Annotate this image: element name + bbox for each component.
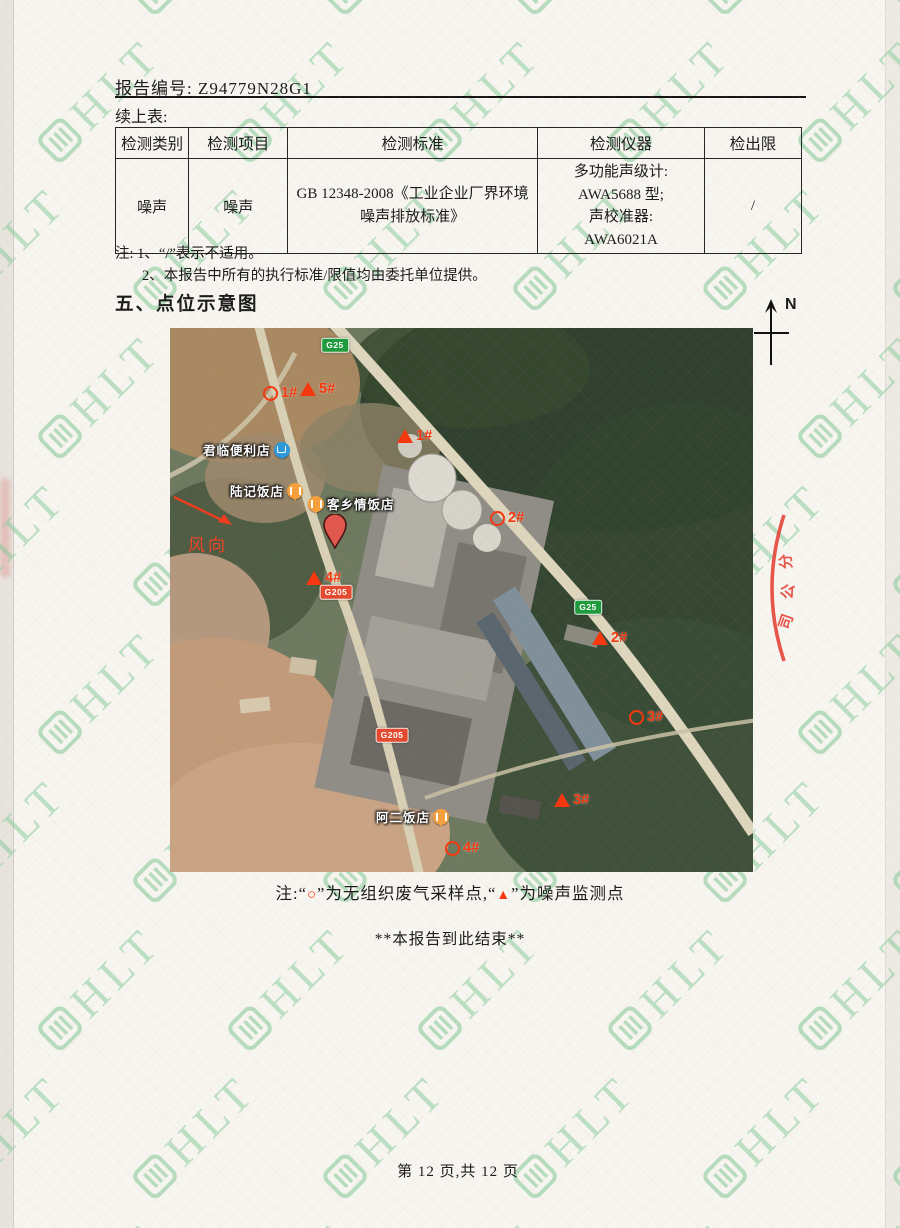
restaurant-pin-icon — [308, 496, 324, 512]
triangle-marker-icon — [554, 793, 570, 807]
legend-text: ”为无组织废气采样点,“ — [317, 884, 496, 903]
north-compass: N — [745, 295, 805, 371]
continued-table-label: 续上表: — [115, 103, 167, 127]
note-line: 2、本报告中所有的执行标准/限值均由委托单位提供。 — [115, 265, 487, 287]
noise-monitoring-point: 2# — [592, 630, 627, 646]
circle-marker-icon — [490, 511, 505, 526]
circle-marker-icon — [629, 710, 644, 725]
poi-restaurant: 阿二饭店 — [376, 807, 449, 826]
noise-point-symbol: ▲ — [496, 888, 511, 903]
shopping-cart-pin-icon — [274, 442, 290, 458]
road-shield-g205: G205 — [376, 728, 409, 743]
poi-name: 君临便利店 — [203, 440, 271, 459]
restaurant-pin-icon — [433, 809, 449, 825]
point-label: 4# — [325, 570, 341, 586]
triangle-marker-icon — [300, 382, 316, 396]
poi-store: 君临便利店 — [203, 440, 290, 459]
instrument-line: 声校准器: — [542, 206, 700, 229]
point-label: 2# — [611, 630, 627, 646]
section-title: 五、点位示意图 — [115, 290, 259, 316]
noise-monitoring-point: 3# — [554, 792, 589, 808]
site-location-map: 风向 5#1#2#4#3#1#2#3#4#G25G25G205G205君临便利店… — [170, 328, 753, 872]
instrument-line: AWA6021A — [542, 229, 700, 252]
note-label: 注: — [115, 243, 134, 265]
road-shield-g205: G205 — [320, 585, 353, 600]
cell-instrument: 多功能声级计:AWA5688 型;声校准器:AWA6021A — [538, 159, 705, 254]
point-label: 5# — [319, 381, 335, 397]
triangle-marker-icon — [592, 631, 608, 645]
table-row: 噪声 噪声 GB 12348-2008《工业企业厂界环境噪声排放标准》 多功能声… — [116, 159, 802, 254]
cell-detection-limit: / — [704, 159, 801, 254]
report-page: HLTHLTHLTHLTHLTHLTHLTHLTHLTHLTHLTHLTHLTH… — [0, 0, 900, 1228]
restaurant-pin-icon — [287, 483, 303, 499]
gas-point-symbol: ○ — [307, 887, 317, 903]
noise-monitoring-point: 5# — [300, 381, 335, 397]
circle-marker-icon — [263, 386, 278, 401]
road-shield-g25: G25 — [574, 600, 602, 615]
point-label: 4# — [463, 840, 479, 856]
map-legend-note: 注:“○”为无组织废气采样点,“▲”为噪声监测点 — [0, 880, 900, 904]
page-number: 第 12 页,共 12 页 — [0, 1160, 900, 1181]
cell-category: 噪声 — [116, 159, 189, 254]
triangle-marker-icon — [306, 571, 322, 585]
circle-marker-icon — [445, 841, 460, 856]
gas-sampling-point: 1# — [263, 385, 297, 401]
point-label: 1# — [281, 385, 297, 401]
cell-standard: GB 12348-2008《工业企业厂界环境噪声排放标准》 — [288, 159, 538, 254]
col-instrument: 检测仪器 — [538, 128, 705, 159]
point-label: 2# — [508, 510, 524, 526]
legend-text: ”为噪声监测点 — [511, 884, 624, 903]
wind-direction-label: 风向 — [188, 531, 228, 556]
note-1: 1、“/”表示不适用。 — [137, 243, 263, 265]
seal-character: 分 — [774, 553, 796, 570]
report-end-marker: **本报告到此结束** — [0, 927, 900, 949]
note-line: 注: 1、“/”表示不适用。 — [115, 243, 487, 265]
table-notes: 注: 1、“/”表示不适用。 2、本报告中所有的执行标准/限值均由委托单位提供。 — [115, 243, 487, 288]
triangle-marker-icon — [397, 429, 413, 443]
poi-restaurant: 客乡情饭店 — [308, 494, 395, 513]
point-label: 3# — [573, 792, 589, 808]
gas-sampling-point: 4# — [445, 840, 479, 856]
legend-text: 注:“ — [276, 884, 307, 903]
noise-monitoring-point: 1# — [397, 428, 432, 444]
factory-location-pin — [322, 514, 348, 550]
company-seal-partial: 分公司 — [742, 503, 812, 673]
point-label: 1# — [416, 428, 432, 444]
poi-name: 阿二饭店 — [376, 807, 430, 826]
satellite-imagery — [170, 328, 753, 872]
col-limit: 检出限 — [704, 128, 801, 159]
gas-sampling-point: 3# — [629, 709, 663, 725]
noise-monitoring-point: 4# — [306, 570, 341, 586]
detection-table: 检测类别 检测项目 检测标准 检测仪器 检出限 噪声 噪声 GB 12348-2… — [115, 127, 802, 254]
point-label: 3# — [647, 709, 663, 725]
instrument-line: AWA5688 型; — [542, 184, 700, 207]
gas-sampling-point: 2# — [490, 510, 524, 526]
road-shield-g25: G25 — [321, 338, 349, 353]
cell-item: 噪声 — [189, 159, 288, 254]
poi-name: 客乡情饭店 — [327, 494, 395, 513]
table-header-row: 检测类别 检测项目 检测标准 检测仪器 检出限 — [116, 128, 802, 159]
col-category: 检测类别 — [116, 128, 189, 159]
col-item: 检测项目 — [189, 128, 288, 159]
seal-character: 公 — [776, 583, 799, 600]
instrument-line: 多功能声级计: — [542, 161, 700, 184]
note-2: 2、本报告中所有的执行标准/限值均由委托单位提供。 — [142, 265, 487, 287]
col-standard: 检测标准 — [288, 128, 538, 159]
north-label: N — [785, 296, 797, 314]
header-rule — [115, 96, 806, 98]
